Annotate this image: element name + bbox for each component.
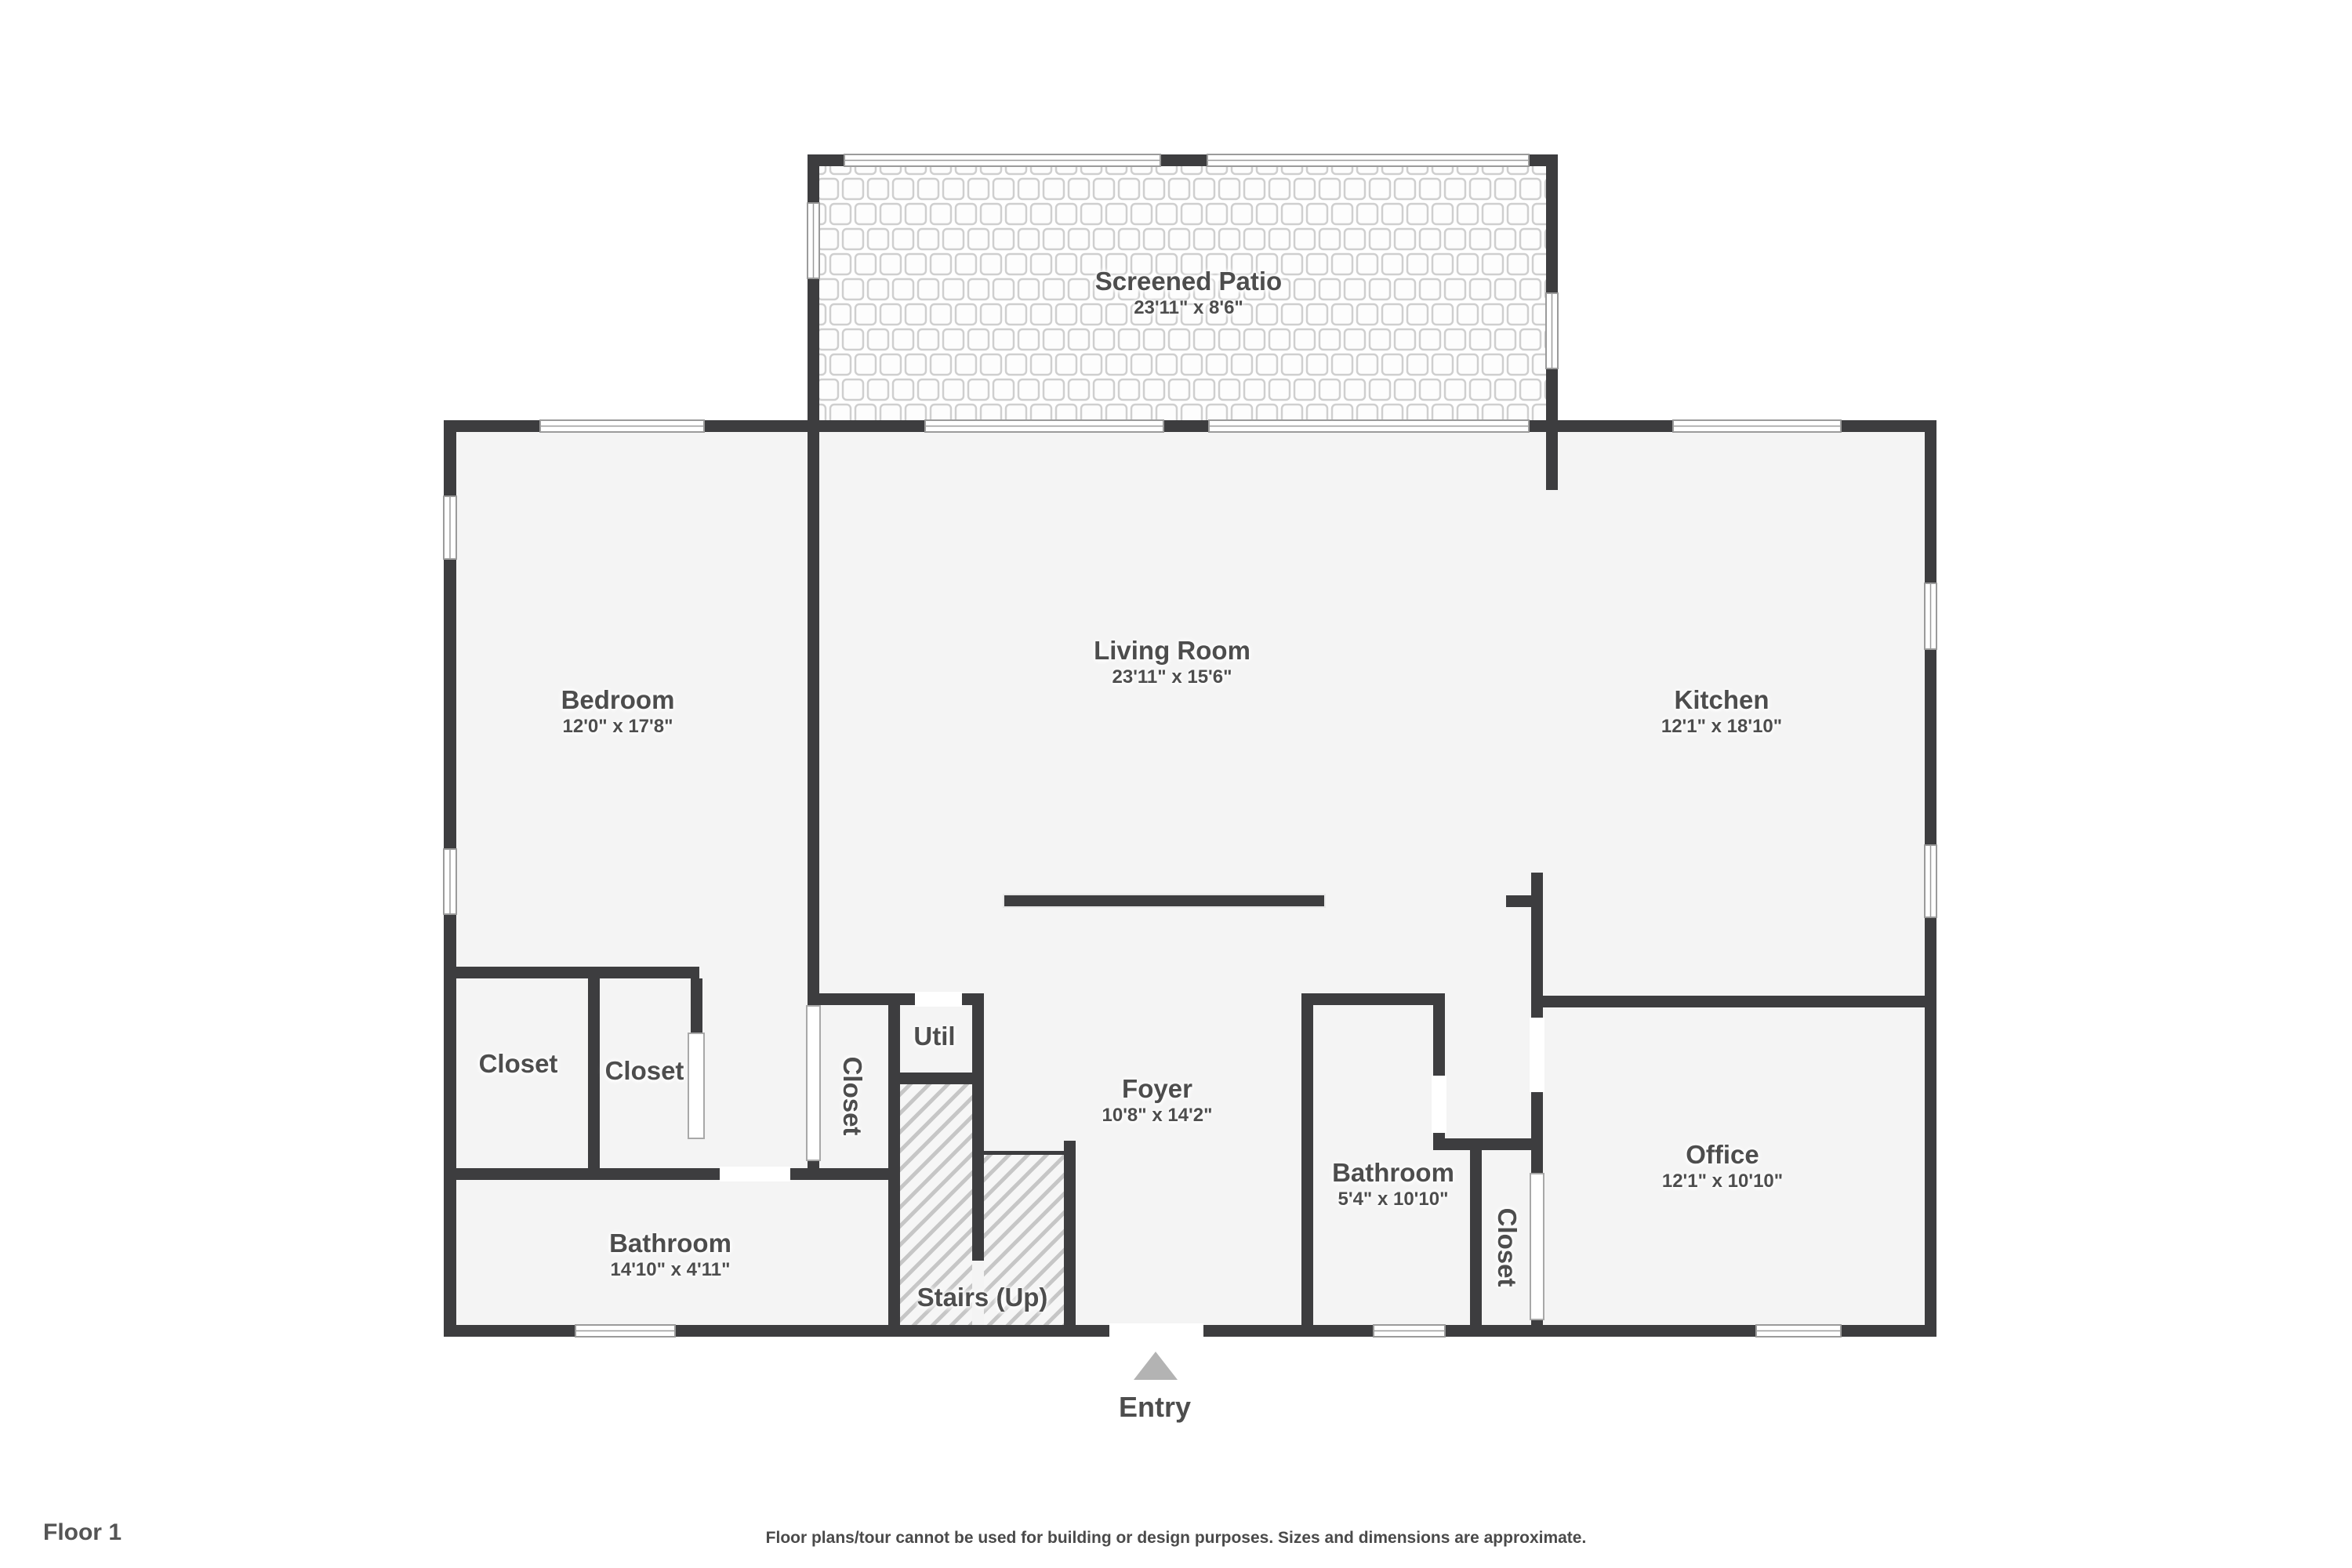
room-name: Closet [837,1057,867,1136]
room-label-office: Office 12'1" x 10'10" [1662,1140,1783,1193]
room-name: Closet [479,1049,558,1079]
room-label-living-room: Living Room 23'11" x 15'6" [1094,636,1250,689]
room-name: Office [1662,1140,1783,1170]
room-name: Closet [1492,1208,1522,1287]
room-label-closet-1: Closet [479,1049,558,1079]
room-name: Stairs (Up) [917,1283,1048,1312]
room-label-bathroom-main: Bathroom 14'10" x 4'11" [609,1229,731,1282]
room-label-screened-patio: Screened Patio 23'11" x 8'6" [1095,267,1282,320]
room-name: Screened Patio [1095,267,1282,296]
room-dims: 12'1" x 10'10" [1662,1170,1783,1193]
room-label-foyer: Foyer 10'8" x 14'2" [1102,1074,1213,1127]
room-label-stairs: Stairs (Up) [917,1283,1048,1312]
room-label-closet-2: Closet [605,1056,684,1086]
room-label-bathroom-2: Bathroom 5'4" x 10'10" [1332,1158,1454,1211]
room-label-bedroom: Bedroom 12'0" x 17'8" [561,685,675,739]
room-name: Bathroom [1332,1158,1454,1188]
entry-arrow-icon [1134,1352,1178,1380]
room-name: Bathroom [609,1229,731,1258]
room-name: Util [913,1022,955,1051]
room-dims: 14'10" x 4'11" [609,1258,731,1282]
room-dims: 12'0" x 17'8" [561,715,675,739]
room-label-util: Util [913,1022,955,1051]
disclaimer-text: Floor plans/tour cannot be used for buil… [0,1529,2352,1548]
floor-plan-drawing [0,0,2352,1568]
room-dims: 23'11" x 8'6" [1095,296,1282,320]
room-name: Bedroom [561,685,675,715]
living-room-half-wall [1004,895,1325,907]
room-label-closet-hall: Closet [837,1057,867,1136]
room-label-closet-office: Closet [1492,1208,1522,1287]
room-name: Closet [605,1056,684,1086]
room-name: Foyer [1102,1074,1213,1104]
room-label-kitchen: Kitchen 12'1" x 18'10" [1661,685,1782,739]
room-dims: 12'1" x 18'10" [1661,715,1782,739]
room-name: Living Room [1094,636,1250,666]
room-name: Kitchen [1661,685,1782,715]
entry-label: Entry [1119,1391,1191,1424]
room-dims: 23'11" x 15'6" [1094,666,1250,689]
room-dims: 5'4" x 10'10" [1332,1188,1454,1211]
floor-plan-page: { "floor_label": "Floor 1", "disclaimer"… [0,0,2352,1568]
room-dims: 10'8" x 14'2" [1102,1104,1213,1127]
